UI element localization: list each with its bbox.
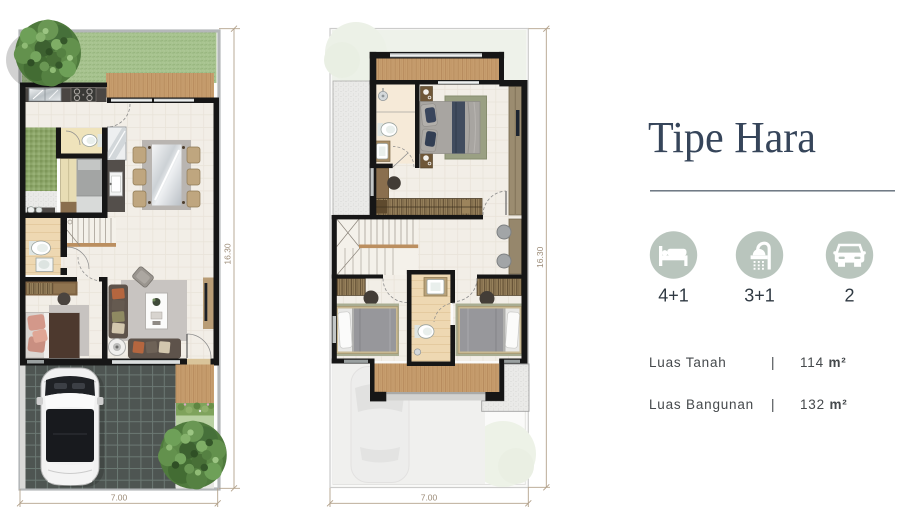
svg-text:114 m²: 114 m² bbox=[800, 355, 847, 370]
svg-text:7.00: 7.00 bbox=[421, 493, 438, 503]
svg-text:4+1: 4+1 bbox=[658, 286, 689, 306]
svg-text:|: | bbox=[771, 397, 775, 412]
svg-text:|: | bbox=[771, 355, 775, 370]
svg-text:Luas Tanah: Luas Tanah bbox=[649, 355, 727, 370]
svg-text:7.00: 7.00 bbox=[111, 493, 128, 503]
svg-text:Tipe Hara: Tipe Hara bbox=[648, 113, 816, 162]
svg-text:3+1: 3+1 bbox=[744, 286, 775, 306]
svg-text:16.30: 16.30 bbox=[535, 246, 545, 268]
svg-text:Luas Bangunan: Luas Bangunan bbox=[649, 397, 754, 412]
svg-text:132 m²: 132 m² bbox=[800, 397, 848, 412]
svg-text:16.30: 16.30 bbox=[223, 243, 233, 265]
svg-text:2: 2 bbox=[844, 286, 854, 306]
